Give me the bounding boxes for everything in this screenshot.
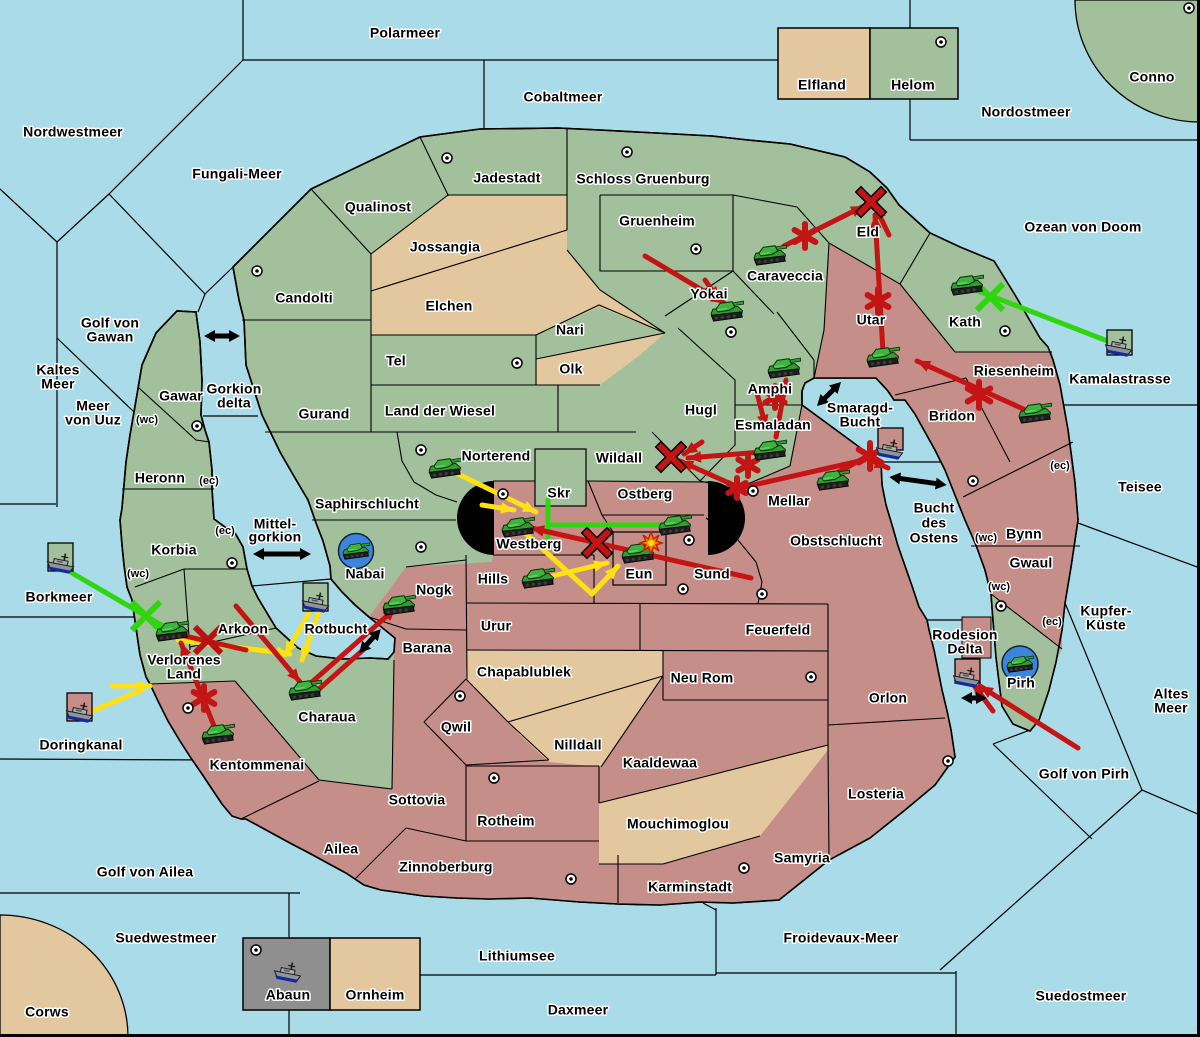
svg-text:Amphi: Amphi (748, 381, 793, 397)
svg-text:Bucht: Bucht (914, 500, 955, 516)
svg-text:Westberg: Westberg (496, 536, 561, 552)
svg-text:Skr: Skr (547, 485, 571, 501)
svg-text:Ailea: Ailea (324, 841, 358, 857)
svg-text:Eun: Eun (625, 566, 652, 582)
svg-text:Helom: Helom (891, 77, 935, 93)
svg-text:Borkmeer: Borkmeer (26, 589, 93, 605)
svg-text:Orlon: Orlon (869, 690, 907, 706)
svg-text:Eld: Eld (857, 224, 879, 240)
svg-text:Candolti: Candolti (275, 290, 333, 306)
svg-text:Land: Land (167, 666, 201, 682)
svg-text:Arkoon: Arkoon (218, 621, 268, 637)
svg-text:Qualinost: Qualinost (345, 199, 411, 215)
svg-text:Kath: Kath (949, 314, 981, 330)
svg-text:Suedostmeer: Suedostmeer (1036, 988, 1127, 1004)
svg-text:Esmaladan: Esmaladan (735, 417, 811, 433)
svg-text:Utar: Utar (857, 312, 886, 328)
svg-text:Charaua: Charaua (298, 709, 355, 725)
svg-text:Nordwestmeer: Nordwestmeer (23, 124, 123, 140)
svg-text:Sund: Sund (694, 566, 730, 582)
svg-text:Bynn: Bynn (1006, 526, 1042, 542)
svg-text:(wc): (wc) (127, 568, 149, 580)
svg-text:Bridon: Bridon (929, 408, 975, 424)
svg-text:Land der Wiesel: Land der Wiesel (385, 403, 495, 419)
svg-text:Gurand: Gurand (299, 406, 350, 422)
svg-text:Gwaul: Gwaul (1009, 555, 1052, 571)
svg-text:Ostens: Ostens (910, 530, 959, 546)
svg-text:Küste: Küste (1086, 617, 1126, 633)
svg-text:Golf von Pirh: Golf von Pirh (1039, 766, 1130, 782)
svg-text:Neu Rom: Neu Rom (671, 670, 734, 686)
svg-text:(ec): (ec) (215, 525, 235, 537)
svg-text:Saphirschlucht: Saphirschlucht (315, 496, 419, 512)
svg-text:Jossangia: Jossangia (410, 239, 480, 255)
svg-text:Suedwestmeer: Suedwestmeer (115, 930, 217, 946)
svg-text:(wc): (wc) (136, 414, 158, 426)
svg-text:Cobaltmeer: Cobaltmeer (523, 89, 602, 105)
svg-text:Tel: Tel (386, 353, 406, 369)
svg-text:Conno: Conno (1129, 69, 1174, 85)
svg-text:Norterend: Norterend (462, 448, 531, 464)
svg-text:Feuerfeld: Feuerfeld (746, 622, 811, 638)
svg-text:Fungali-Meer: Fungali-Meer (192, 166, 282, 182)
svg-text:Rotheim: Rotheim (477, 813, 534, 829)
svg-text:Nari: Nari (556, 322, 584, 338)
svg-text:Ostberg: Ostberg (617, 486, 672, 502)
svg-text:Golf von Ailea: Golf von Ailea (97, 864, 193, 880)
svg-text:Barana: Barana (403, 640, 452, 656)
svg-text:Urur: Urur (481, 618, 512, 634)
svg-text:(ec): (ec) (1050, 460, 1070, 472)
svg-text:Elchen: Elchen (425, 298, 472, 314)
svg-text:Delta: Delta (947, 641, 982, 657)
svg-text:Sottovia: Sottovia (389, 792, 446, 808)
svg-text:Gawan: Gawan (87, 329, 134, 345)
svg-text:Caraveccia: Caraveccia (747, 268, 823, 284)
svg-text:Jadestadt: Jadestadt (473, 170, 540, 186)
svg-text:Yokai: Yokai (690, 286, 727, 302)
svg-text:(ec): (ec) (1042, 616, 1062, 628)
svg-text:Kaaldewaa: Kaaldewaa (623, 755, 697, 771)
svg-text:(wc): (wc) (975, 532, 997, 544)
svg-text:Polarmeer: Polarmeer (370, 25, 441, 41)
svg-text:Elfland: Elfland (798, 77, 846, 93)
svg-text:Mouchimoglou: Mouchimoglou (627, 816, 729, 832)
svg-text:Teisee: Teisee (1118, 479, 1162, 495)
svg-text:Nabai: Nabai (345, 566, 384, 582)
svg-text:Zinnoberburg: Zinnoberburg (399, 859, 492, 875)
svg-text:Obstschlucht: Obstschlucht (790, 533, 882, 549)
svg-text:Abaun: Abaun (266, 987, 311, 1003)
svg-text:Heronn: Heronn (135, 470, 185, 486)
svg-text:Hugl: Hugl (685, 402, 717, 418)
svg-text:Meer: Meer (41, 376, 75, 392)
svg-text:Samyria: Samyria (774, 850, 830, 866)
svg-text:Ozean von Doom: Ozean von Doom (1024, 219, 1141, 235)
svg-text:Riesenheim: Riesenheim (974, 363, 1055, 379)
svg-text:Nogk: Nogk (416, 582, 452, 598)
svg-text:Nilldall: Nilldall (554, 737, 602, 753)
svg-text:Chapablublek: Chapablublek (477, 664, 571, 680)
svg-text:Korbia: Korbia (151, 542, 197, 558)
svg-text:Qwil: Qwil (441, 719, 471, 735)
svg-text:Meer: Meer (1154, 700, 1188, 716)
svg-text:(ec): (ec) (199, 475, 219, 487)
svg-text:(wc): (wc) (988, 581, 1010, 593)
svg-text:Ornheim: Ornheim (346, 987, 405, 1003)
svg-text:Bucht: Bucht (840, 414, 881, 430)
svg-text:Corws: Corws (25, 1004, 69, 1020)
svg-text:Pirh: Pirh (1007, 675, 1035, 691)
svg-text:Schloss Gruenburg: Schloss Gruenburg (576, 171, 709, 187)
svg-text:gorkion: gorkion (249, 529, 302, 545)
svg-text:von Uuz: von Uuz (65, 412, 121, 428)
svg-text:Hills: Hills (478, 571, 509, 587)
svg-text:Mellar: Mellar (768, 493, 810, 509)
svg-text:Olk: Olk (559, 361, 582, 377)
svg-text:Daxmeer: Daxmeer (548, 1002, 609, 1018)
svg-text:Karminstadt: Karminstadt (648, 879, 732, 895)
svg-text:des: des (922, 515, 947, 531)
svg-text:Lithiumsee: Lithiumsee (479, 948, 555, 964)
svg-text:Wildall: Wildall (596, 450, 642, 466)
svg-text:Gruenheim: Gruenheim (619, 213, 695, 229)
svg-text:Losteria: Losteria (848, 786, 904, 802)
svg-text:Gawar: Gawar (159, 388, 203, 404)
svg-text:Nordostmeer: Nordostmeer (981, 104, 1071, 120)
svg-text:Kamalastrasse: Kamalastrasse (1069, 371, 1170, 387)
svg-text:Doringkanal: Doringkanal (39, 737, 122, 753)
svg-text:Froidevaux-Meer: Froidevaux-Meer (783, 930, 898, 946)
svg-text:delta: delta (217, 395, 251, 411)
svg-text:Rotbucht: Rotbucht (304, 621, 367, 637)
svg-text:Kentommenai: Kentommenai (210, 757, 305, 773)
